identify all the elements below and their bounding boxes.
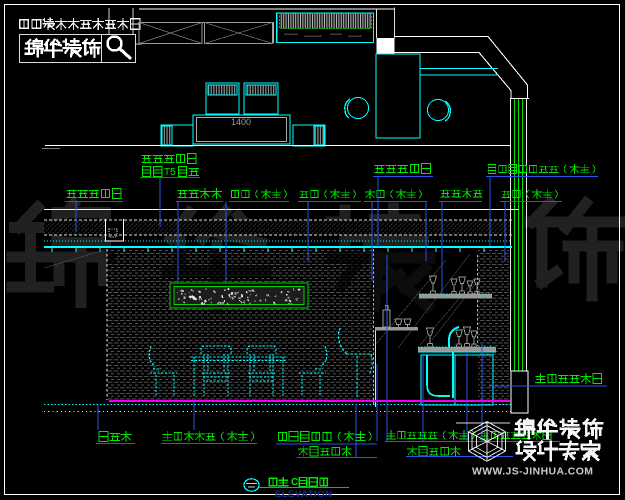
svg-text:WWW.JS-JINHUA.COM: WWW.JS-JINHUA.COM [472, 467, 593, 478]
svg-text:ELEVATION: ELEVATION [275, 489, 332, 500]
svg-text:T5: T5 [164, 167, 176, 178]
svg-text:C: C [291, 477, 298, 488]
svg-text:1400: 1400 [231, 117, 251, 127]
